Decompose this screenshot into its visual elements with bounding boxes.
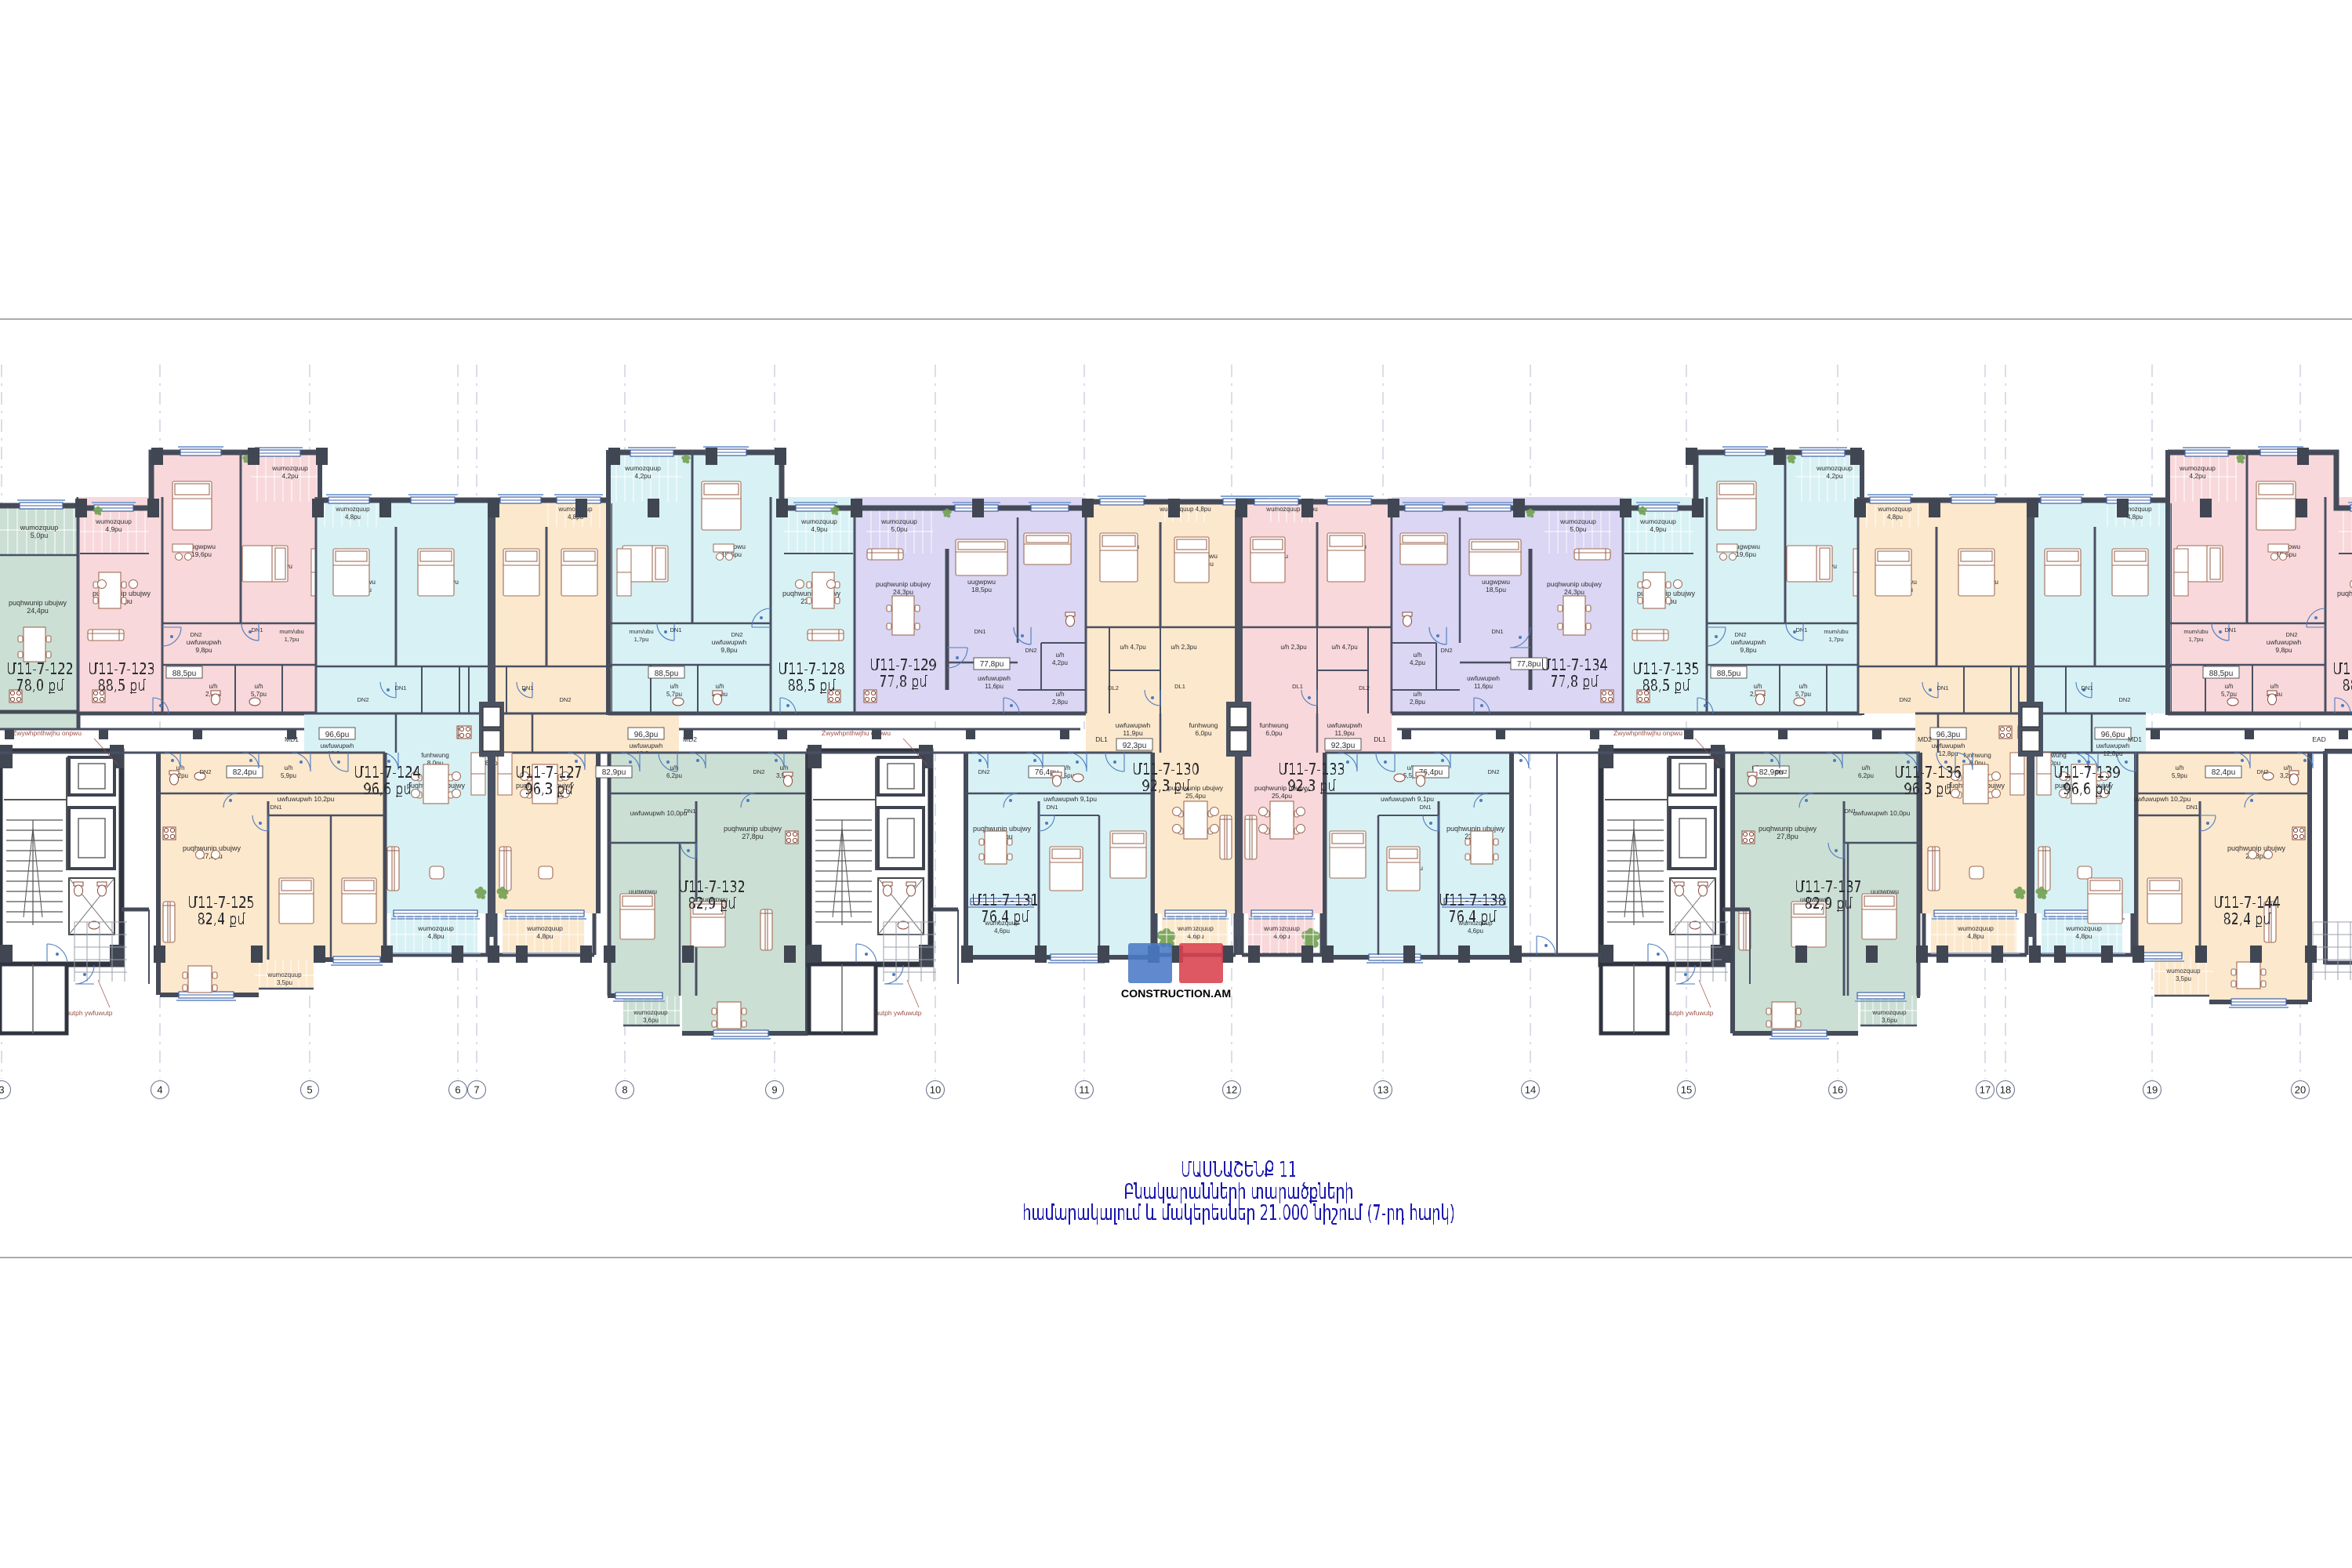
svg-text:DN1: DN1	[684, 808, 695, 815]
svg-text:wumozquup: wumozquup	[1871, 1009, 1907, 1016]
svg-text:92,3pu: 92,3pu	[1331, 742, 1356, 750]
svg-text:4,2pu: 4,2pu	[634, 472, 652, 480]
svg-text:19: 19	[2147, 1084, 2158, 1096]
svg-text:9,8pu: 9,8pu	[1740, 646, 1757, 654]
svg-text:2,8pu: 2,8pu	[1410, 699, 1425, 706]
svg-text:wumozquup: wumozquup	[1177, 924, 1214, 932]
svg-text:uwfuwupwh: uwfuwupwh	[1116, 721, 1151, 729]
svg-text:u/h: u/h	[254, 683, 263, 690]
svg-text:19,6pu: 19,6pu	[191, 550, 212, 558]
svg-text:mum/ubu: mum/ubu	[1824, 628, 1848, 635]
svg-text:7: 7	[474, 1084, 479, 1096]
svg-text:DN2: DN2	[1775, 768, 1787, 775]
svg-text:13: 13	[1377, 1084, 1388, 1096]
svg-text:DN2: DN2	[1440, 647, 1452, 654]
svg-text:4,2pu: 4,2pu	[281, 472, 299, 480]
svg-text:puqhwunip ubujwy: puqhwunip ubujwy	[1759, 825, 1817, 833]
svg-text:u/h: u/h	[1753, 683, 1762, 690]
svg-text:uwfuwupwh: uwfuwupwh	[1467, 675, 1500, 682]
svg-text:24,4pu: 24,4pu	[27, 607, 49, 615]
svg-text:DL1: DL1	[1174, 683, 1185, 690]
svg-text:DN1: DN1	[270, 804, 281, 811]
svg-text:1,7pu: 1,7pu	[634, 636, 649, 643]
svg-text:DN2: DN2	[199, 768, 211, 775]
svg-text:DL1: DL1	[1292, 683, 1303, 690]
svg-text:wumozquup 4,8pu: wumozquup 4,8pu	[1159, 506, 1210, 513]
svg-text:uwfuwupwh: uwfuwupwh	[712, 638, 747, 646]
svg-text:88,5pu: 88,5pu	[172, 670, 197, 678]
svg-text:11,9pu: 11,9pu	[1334, 729, 1355, 737]
svg-text:DL1: DL1	[1095, 735, 1108, 743]
svg-text:6,0pu: 6,0pu	[1265, 729, 1283, 737]
svg-text:DN2: DN2	[731, 631, 742, 638]
svg-text:uwfuwupwh: uwfuwupwh	[321, 742, 354, 750]
svg-text:u/h: u/h	[284, 764, 292, 771]
svg-text:3: 3	[0, 1084, 5, 1096]
svg-text:uwfuwupwh 10,0pu: uwfuwupwh 10,0pu	[630, 809, 688, 817]
svg-text:wumozquup: wumozquup	[1559, 517, 1596, 525]
svg-text:u/h: u/h	[1055, 691, 1064, 698]
svg-text:DN2: DN2	[2256, 768, 2268, 775]
svg-text:5,0pu: 5,0pu	[1570, 525, 1587, 533]
svg-text:4,8pu: 4,8pu	[427, 932, 445, 940]
svg-text:MD2: MD2	[1918, 735, 1932, 743]
svg-text:12,8pu: 12,8pu	[2103, 750, 2122, 757]
svg-text:4,8pu: 4,8pu	[2075, 932, 2092, 940]
svg-text:DN1: DN1	[670, 626, 681, 633]
svg-text:4,2pu: 4,2pu	[1052, 659, 1068, 666]
svg-text:11,6pu: 11,6pu	[1474, 683, 1493, 690]
svg-text:96,6pu: 96,6pu	[325, 731, 350, 739]
svg-text:19,6pu: 19,6pu	[1736, 550, 1756, 558]
svg-text:wumozquup: wumozquup	[271, 464, 308, 472]
svg-text:uwfuwupwh 10,2pu: uwfuwupwh 10,2pu	[278, 795, 335, 803]
svg-text:18,5pu: 18,5pu	[971, 586, 992, 593]
svg-text:DN2: DN2	[978, 768, 989, 775]
svg-text:wumozquup: wumozquup	[557, 506, 593, 513]
svg-text:funhwung: funhwung	[421, 752, 449, 759]
svg-text:wumozquup: wumozquup	[800, 517, 837, 525]
svg-text:u/h: u/h	[1413, 652, 1421, 659]
svg-text:uwfuwupwh: uwfuwupwh	[1932, 742, 1965, 750]
svg-text:9,8pu: 9,8pu	[195, 646, 212, 654]
svg-text:funhwung: funhwung	[1189, 721, 1218, 729]
svg-text:6: 6	[455, 1084, 460, 1096]
svg-text:u/h 2,3pu: u/h 2,3pu	[1280, 644, 1306, 651]
svg-text:wumozquup: wumozquup	[1816, 464, 1853, 472]
svg-text:CONSTRUCTION.AM: CONSTRUCTION.AM	[1121, 988, 1231, 1000]
svg-text:puqhwunip ubujwy: puqhwunip ubujwy	[183, 844, 241, 852]
svg-text:DN2: DN2	[357, 696, 368, 703]
svg-text:6,2pu: 6,2pu	[666, 772, 682, 779]
svg-text:4,8pu: 4,8pu	[536, 932, 554, 940]
svg-text:9,8pu: 9,8pu	[2275, 646, 2292, 654]
svg-text:u/h: u/h	[1861, 764, 1870, 771]
svg-text:96,6pu: 96,6pu	[2101, 731, 2125, 739]
svg-text:24,3pu: 24,3pu	[1564, 588, 1584, 596]
svg-text:wumozquup: wumozquup	[335, 506, 370, 513]
svg-text:u/h 4,7pu: u/h 4,7pu	[1331, 644, 1357, 651]
svg-text:92,3pu: 92,3pu	[1123, 742, 1147, 750]
svg-text:4,6pu: 4,6pu	[1468, 927, 1483, 935]
svg-text:uwfuwupwh 10,0pu: uwfuwupwh 10,0pu	[1853, 809, 1911, 817]
svg-text:25,4pu: 25,4pu	[1185, 792, 1206, 800]
svg-text:wumozquup: wumozquup	[2065, 924, 2102, 932]
svg-text:88,5pu: 88,5pu	[1717, 670, 1741, 678]
svg-text:88,5pu: 88,5pu	[655, 670, 679, 678]
svg-text:27,8pu: 27,8pu	[742, 833, 764, 840]
svg-text:uwfuwupwh: uwfuwupwh	[1327, 721, 1363, 729]
svg-text:u/h: u/h	[2175, 764, 2183, 771]
svg-text:u/h: u/h	[1055, 652, 1064, 659]
svg-text:uwfuwupwh 9,1pu: uwfuwupwh 9,1pu	[1044, 795, 1097, 803]
svg-text:15: 15	[1681, 1084, 1692, 1096]
svg-text:DN2: DN2	[559, 696, 571, 703]
svg-text:u/h: u/h	[209, 683, 217, 690]
svg-text:4,8pu: 4,8pu	[1887, 514, 1903, 521]
svg-text:DN2: DN2	[1899, 696, 1911, 703]
svg-text:DL2: DL2	[1108, 684, 1119, 691]
svg-text:DN2: DN2	[1025, 647, 1036, 654]
svg-text:wumozquup: wumozquup	[95, 517, 132, 525]
svg-text:5,7pu: 5,7pu	[1795, 691, 1811, 698]
svg-text:5,7pu: 5,7pu	[251, 691, 267, 698]
svg-text:uwfuwupwh: uwfuwupwh	[2267, 638, 2302, 646]
svg-text:4,2pu: 4,2pu	[1826, 472, 1843, 480]
svg-text:u/h: u/h	[1798, 683, 1807, 690]
svg-text:18: 18	[2000, 1084, 2011, 1096]
svg-text:4: 4	[157, 1084, 162, 1096]
svg-text:5,9pu: 5,9pu	[2172, 772, 2187, 779]
svg-text:25,4pu: 25,4pu	[1272, 792, 1292, 800]
svg-text:1,7pu: 1,7pu	[285, 636, 299, 643]
svg-text:14: 14	[1525, 1084, 1536, 1096]
svg-text:DN1: DN1	[1795, 626, 1807, 633]
svg-text:4,9pu: 4,9pu	[1650, 525, 1667, 533]
svg-text:puqhwunip ubujwy: puqhwunip ubujwy	[9, 599, 67, 607]
svg-text:u/h 4,7pu: u/h 4,7pu	[1120, 644, 1145, 651]
svg-text:DN1: DN1	[394, 684, 406, 691]
svg-text:u/h: u/h	[670, 683, 678, 690]
svg-text:DN2: DN2	[2118, 696, 2130, 703]
svg-text:1,7pu: 1,7pu	[1829, 636, 1844, 643]
svg-text:DN1: DN1	[2081, 684, 2092, 691]
svg-text:wumozquup: wumozquup	[2165, 967, 2201, 975]
svg-text:4,2pu: 4,2pu	[1410, 659, 1425, 666]
svg-text:82,9pu: 82,9pu	[602, 768, 626, 777]
svg-text:puqhwunip ubujwy: puqhwunip ubujwy	[724, 825, 782, 833]
svg-text:11,6pu: 11,6pu	[985, 683, 1004, 690]
svg-text:DN1: DN1	[1844, 808, 1856, 815]
svg-text:wumozquup: wumozquup	[1957, 924, 1994, 932]
svg-text:DL1: DL1	[1374, 735, 1386, 743]
svg-text:20: 20	[2295, 1084, 2306, 1096]
svg-text:5,7pu: 5,7pu	[2221, 691, 2237, 698]
svg-text:wumozquup: wumozquup	[1263, 924, 1300, 932]
svg-text:uwfuwupwh 9,1pu: uwfuwupwh 9,1pu	[1381, 795, 1434, 803]
svg-text:4,8pu: 4,8pu	[1967, 932, 1984, 940]
svg-text:uwfuwupwh: uwfuwupwh	[187, 638, 222, 646]
svg-text:puqhwunip ubujwy: puqhwunip ubujwy	[2227, 844, 2286, 852]
svg-text:u/h: u/h	[715, 683, 724, 690]
svg-text:16: 16	[1832, 1084, 1843, 1096]
svg-text:DN2: DN2	[1734, 631, 1746, 638]
svg-text:82,4pu: 82,4pu	[233, 768, 257, 777]
svg-text:8: 8	[622, 1084, 627, 1096]
svg-text:11: 11	[1079, 1084, 1090, 1096]
svg-text:3,5pu: 3,5pu	[277, 979, 292, 986]
svg-text:mum/ubu: mum/ubu	[629, 628, 653, 635]
svg-text:uwfuwupwh: uwfuwupwh	[630, 742, 663, 750]
svg-text:uwfuwupwh 10,2pu: uwfuwupwh 10,2pu	[2134, 795, 2191, 803]
svg-text:MD1: MD1	[2128, 735, 2142, 743]
svg-text:5,0pu: 5,0pu	[31, 532, 49, 539]
svg-text:4,9pu: 4,9pu	[105, 525, 122, 533]
svg-text:wumozquup: wumozquup	[880, 517, 917, 525]
svg-text:uugwpwu: uugwpwu	[1482, 578, 1510, 586]
svg-text:DN1: DN1	[2224, 626, 2236, 633]
svg-text:6,2pu: 6,2pu	[1858, 772, 1874, 779]
svg-text:DN2: DN2	[190, 631, 201, 638]
svg-text:DN1: DN1	[974, 628, 985, 635]
svg-text:uwfuwupwh: uwfuwupwh	[978, 675, 1011, 682]
svg-text:4,9pu: 4,9pu	[811, 525, 828, 533]
svg-text:4,6pu: 4,6pu	[994, 927, 1010, 935]
svg-text:9,8pu: 9,8pu	[720, 646, 738, 654]
svg-text:96,3pu: 96,3pu	[1936, 731, 1961, 739]
svg-text:uwfuwupwh: uwfuwupwh	[2096, 742, 2130, 750]
svg-text:5: 5	[307, 1084, 312, 1096]
svg-text:17: 17	[1980, 1084, 1991, 1096]
svg-text:DN1: DN1	[1491, 628, 1503, 635]
svg-text:u/h: u/h	[2270, 683, 2278, 690]
svg-text:wumozquup: wumozquup	[1877, 506, 1912, 513]
svg-text:DN2: DN2	[1487, 768, 1499, 775]
svg-text:5,9pu: 5,9pu	[281, 772, 296, 779]
svg-text:mum/ubu: mum/ubu	[279, 628, 303, 635]
svg-text:u/h: u/h	[2224, 683, 2233, 690]
svg-text:6,0pu: 6,0pu	[1195, 729, 1212, 737]
svg-text:DN1: DN1	[1936, 684, 1948, 691]
svg-text:DN1: DN1	[1419, 804, 1431, 811]
svg-text:4,6pu: 4,6pu	[1187, 932, 1204, 940]
svg-text:18,5pu: 18,5pu	[1486, 586, 1506, 593]
svg-text:4,8pu: 4,8pu	[345, 514, 361, 521]
svg-text:DN1: DN1	[2186, 804, 2198, 811]
svg-text:88,5pu: 88,5pu	[2209, 670, 2234, 678]
svg-text:wumozquup: wumozquup	[20, 524, 59, 532]
svg-text:wumozquup: wumozquup	[417, 924, 454, 932]
svg-text:5,0pu: 5,0pu	[891, 525, 908, 533]
svg-text:12: 12	[1226, 1084, 1237, 1096]
svg-text:4,6pu: 4,6pu	[1273, 932, 1290, 940]
svg-text:puqhwunip ubujwy: puqhwunip ubujwy	[1547, 580, 1602, 588]
svg-text:mum/ubu: mum/ubu	[2183, 628, 2208, 635]
svg-text:77,8pu: 77,8pu	[1517, 660, 1541, 669]
svg-text:uwfuwupwh: uwfuwupwh	[1731, 638, 1766, 646]
svg-text:DN2: DN2	[753, 768, 764, 775]
svg-text:puqhwunip ubujwy: puqhwunip ubujwy	[876, 580, 931, 588]
svg-text:wumozquup: wumozquup	[633, 1009, 668, 1016]
svg-text:DN2: DN2	[2285, 631, 2297, 638]
svg-text:3,6pu: 3,6pu	[1882, 1017, 1897, 1024]
svg-text:DN1: DN1	[1046, 804, 1058, 811]
svg-text:24,3pu: 24,3pu	[893, 588, 913, 596]
svg-text:11,9pu: 11,9pu	[1123, 729, 1143, 737]
svg-text:uugwpwu: uugwpwu	[967, 578, 996, 586]
svg-text:96,3pu: 96,3pu	[634, 731, 659, 739]
svg-text:DL2: DL2	[1359, 684, 1370, 691]
svg-text:funhwung: funhwung	[1260, 721, 1289, 729]
svg-text:wumozquup: wumozquup	[1639, 517, 1676, 525]
svg-text:5,7pu: 5,7pu	[666, 691, 682, 698]
svg-text:puqhwunip ubujwy: puqhwunip ubujwy	[1168, 784, 1224, 792]
svg-text:3,6pu: 3,6pu	[643, 1017, 659, 1024]
svg-text:82,4pu: 82,4pu	[2212, 768, 2236, 777]
svg-text:4,2pu: 4,2pu	[2189, 472, 2206, 480]
svg-text:10: 10	[930, 1084, 941, 1096]
svg-text:77,8pu: 77,8pu	[980, 660, 1004, 669]
svg-text:wumozquup: wumozquup	[984, 920, 1019, 927]
svg-text:u/h: u/h	[1413, 691, 1421, 698]
svg-text:wumozquup: wumozquup	[526, 924, 563, 932]
svg-text:wumozquup: wumozquup	[624, 464, 661, 472]
svg-text:4,8pu: 4,8pu	[2127, 514, 2143, 521]
svg-text:2,8pu: 2,8pu	[1052, 699, 1068, 706]
svg-text:EAD: EAD	[2312, 735, 2325, 743]
svg-text:wumozquup: wumozquup	[2179, 464, 2216, 472]
svg-text:1,7pu: 1,7pu	[2189, 636, 2204, 643]
svg-text:DN1: DN1	[521, 684, 533, 691]
svg-text:wumozquup: wumozquup	[267, 971, 302, 978]
svg-text:puqhwunip ubujwy: puqhwunip ubujwy	[2337, 590, 2352, 597]
svg-text:u/h 2,3pu: u/h 2,3pu	[1171, 644, 1196, 651]
svg-text:3,5pu: 3,5pu	[2176, 975, 2191, 982]
svg-text:9: 9	[771, 1084, 777, 1096]
svg-text:DN1: DN1	[251, 626, 263, 633]
svg-text:27,8pu: 27,8pu	[1777, 833, 1798, 840]
